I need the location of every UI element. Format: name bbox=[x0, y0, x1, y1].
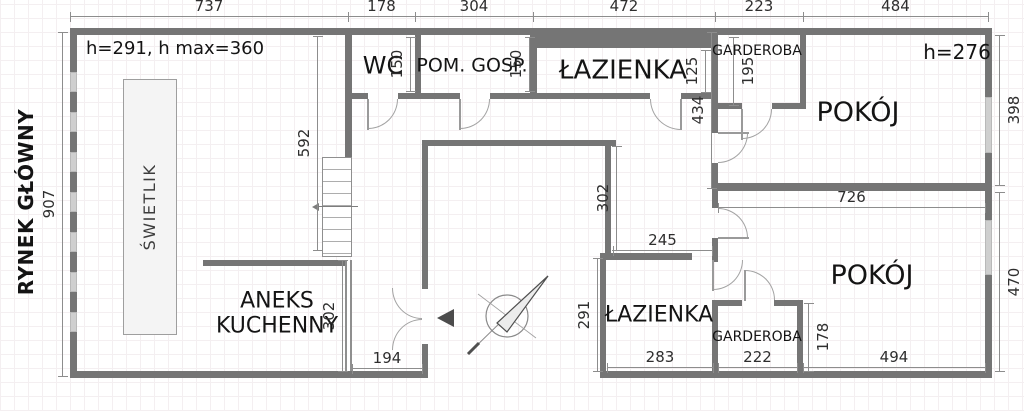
door-leaf bbox=[459, 99, 461, 130]
skylight: ŚWIETLIK bbox=[123, 79, 177, 335]
door-leaf bbox=[367, 99, 369, 130]
dimension-right-470: 470 bbox=[999, 192, 1000, 371]
staircase bbox=[322, 157, 352, 257]
dimension-top-304: 304 bbox=[415, 16, 533, 17]
street-label: RYNEK GŁÓWNY bbox=[15, 109, 37, 295]
window bbox=[70, 152, 77, 172]
window bbox=[70, 232, 77, 252]
door-leaf bbox=[718, 132, 749, 134]
room-label-pokoj-top: POKÓJ bbox=[817, 98, 900, 128]
wall-outer-bottom-right bbox=[600, 371, 992, 378]
height-note-pokoj-top: h=276 bbox=[923, 41, 991, 63]
wall-outer-right bbox=[985, 28, 992, 378]
wall-strip-bottom bbox=[490, 93, 650, 99]
dimension-pokoj-b-494: 494 bbox=[803, 367, 985, 368]
dimension-hall-245: 245 bbox=[613, 250, 712, 251]
dimension-wc-150: 150 bbox=[410, 37, 411, 91]
dimension-lazienka-top-125: 125 bbox=[705, 50, 706, 92]
door-leaf bbox=[712, 260, 714, 291]
wall-void-left bbox=[422, 140, 428, 288]
dimension-top-223: 223 bbox=[715, 16, 803, 17]
staircase-cut-line bbox=[314, 206, 358, 207]
dimension-lazienka-b-291: 291 bbox=[597, 258, 598, 371]
room-label-lazienka-bottom: ŁAZIENKA bbox=[605, 304, 713, 329]
wall-garderoba-b-top bbox=[712, 300, 742, 306]
wall-void-top bbox=[422, 140, 616, 146]
window bbox=[70, 72, 77, 92]
dimension-corridor-434: 434 bbox=[711, 32, 712, 188]
window bbox=[70, 312, 77, 332]
door-leaf bbox=[718, 237, 749, 239]
dimension-left-907: 907 bbox=[62, 32, 63, 376]
door-leaf bbox=[744, 270, 746, 301]
window bbox=[70, 112, 77, 132]
dimension-garderoba-b-178: 178 bbox=[808, 303, 809, 371]
wall-lazienka-top-thick bbox=[533, 33, 718, 48]
wall-aneks-top bbox=[203, 260, 351, 266]
wall-aneks-right-glass bbox=[345, 260, 352, 371]
dimension-top-472: 472 bbox=[533, 16, 715, 17]
height-note-main: h=291, h max=360 bbox=[86, 38, 264, 59]
door-leaf bbox=[680, 99, 682, 130]
dimension-entrance-194: 194 bbox=[352, 368, 422, 369]
window bbox=[985, 97, 992, 153]
dimension-lazienka-b-283: 283 bbox=[607, 367, 713, 368]
wall-outer-top bbox=[70, 28, 992, 35]
wall-hall-bottom bbox=[605, 253, 692, 260]
dimension-hall-592: 592 bbox=[317, 36, 318, 250]
window bbox=[70, 192, 77, 212]
dimension-right-398: 398 bbox=[999, 35, 1000, 185]
dimension-rooms-726: 726 bbox=[718, 207, 985, 208]
entrance-arrow-icon bbox=[437, 309, 454, 327]
wall-outer-bottom-left bbox=[70, 371, 428, 378]
room-label-garderoba-top: GARDEROBA bbox=[712, 44, 802, 60]
dimension-aneks-302: 302 bbox=[342, 260, 343, 371]
floor-plan: ŚWIETLIK RYNEK GŁÓWNY h=291, h max=360 h… bbox=[0, 0, 1024, 411]
dimension-garderoba-b-222: 222 bbox=[718, 367, 797, 368]
skylight-label: ŚWIETLIK bbox=[141, 164, 159, 251]
north-arrow-icon bbox=[460, 270, 555, 364]
window bbox=[985, 220, 992, 275]
wall-garderoba-top-bottom bbox=[712, 103, 742, 109]
room-label-pokoj-bottom: POKÓJ bbox=[831, 261, 914, 291]
window bbox=[70, 272, 77, 292]
entrance-door-jamb bbox=[422, 349, 428, 355]
wall-strip-bottom bbox=[345, 93, 368, 99]
dimension-top-737: 737 bbox=[70, 16, 348, 17]
dimension-top-484: 484 bbox=[803, 16, 988, 17]
dimension-top-178: 178 bbox=[348, 16, 415, 17]
dimension-void-302: 302 bbox=[616, 146, 617, 250]
room-label-lazienka-top: ŁAZIENKA bbox=[559, 56, 687, 85]
dimension-garderoba-top-195: 195 bbox=[733, 37, 734, 105]
wall-strip-bottom bbox=[398, 93, 460, 99]
dimension-pom-150: 150 bbox=[529, 37, 530, 91]
entrance-door-jamb bbox=[422, 283, 428, 289]
room-label-garderoba-bottom: GARDEROBA bbox=[712, 330, 802, 346]
